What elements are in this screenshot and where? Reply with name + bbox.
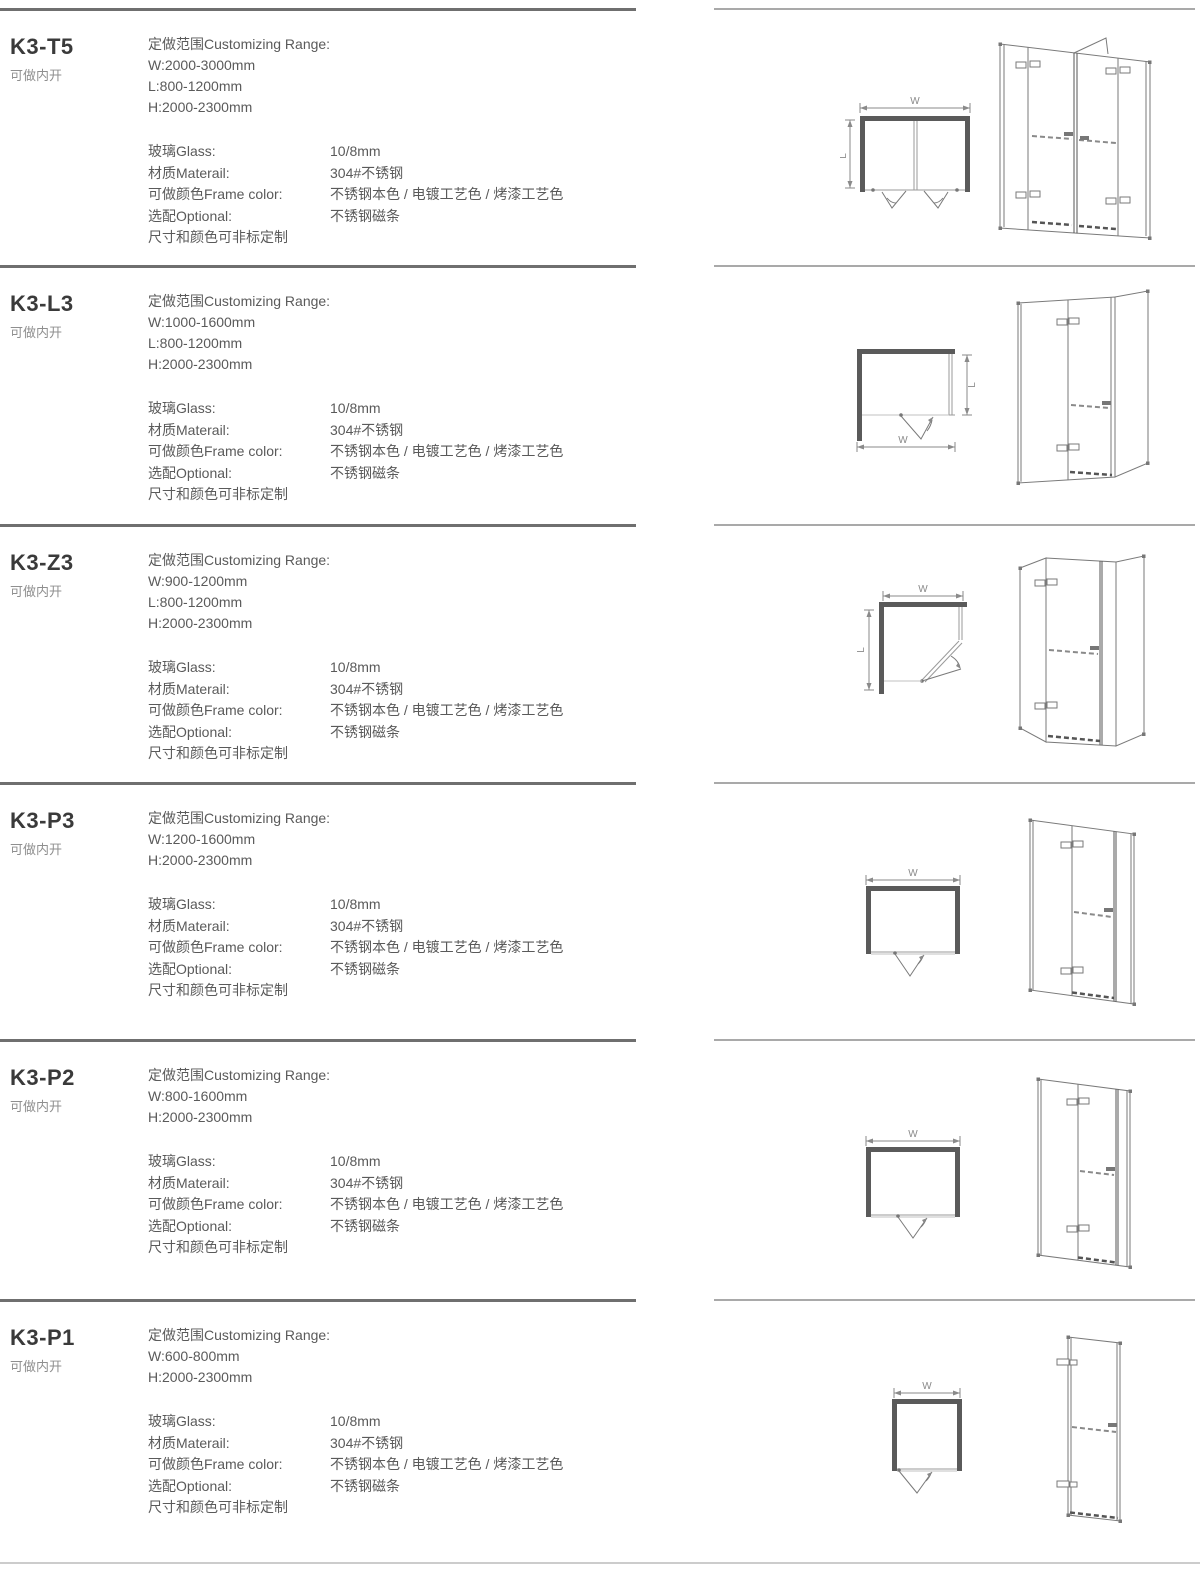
model-name: K3-T5 <box>10 34 74 60</box>
spec-row: 材质Materail:304#不锈钢 <box>148 916 563 938</box>
range-title: 定做范围Customizing Range: <box>148 1065 563 1086</box>
range-title: 定做范围Customizing Range: <box>148 291 563 312</box>
spec-block: 定做范围Customizing Range: W:1000-1600mm L:8… <box>148 291 563 506</box>
spec-table: 玻璃Glass:10/8mm 材质Materail:304#不锈钢 可做颜色Fr… <box>148 657 563 765</box>
model-subtitle: 可做内开 <box>10 1356 75 1375</box>
model-name: K3-Z3 <box>10 550 74 576</box>
divider-right <box>714 524 1195 526</box>
spec-row: 材质Materail:304#不锈钢 <box>148 1433 563 1455</box>
dim-w-label: W <box>898 435 908 446</box>
spec-row: 玻璃Glass:10/8mm <box>148 894 563 916</box>
spec-label: 材质Materail: <box>148 679 330 701</box>
spec-row: 材质Materail:304#不锈钢 <box>148 420 563 442</box>
spec-footnote: 尺寸和颜色可非标定制 <box>148 484 563 506</box>
perspective-diagram-k3-p2 <box>1032 1071 1138 1273</box>
plan-view-diagram-k3-l3: W L <box>843 335 983 455</box>
plan-view-diagram-k3-p3: W <box>848 866 978 978</box>
model-name: K3-P1 <box>10 1325 75 1351</box>
spec-value: 不锈钢磁条 <box>330 959 400 981</box>
range-height: H:2000-2300mm <box>148 1107 563 1128</box>
range-width: W:2000-3000mm <box>148 55 563 76</box>
spec-label: 可做颜色Frame color: <box>148 1194 330 1216</box>
dim-w-label: W <box>910 96 920 107</box>
divider-right <box>714 8 1195 10</box>
spec-value: 304#不锈钢 <box>330 1173 403 1195</box>
spec-label: 玻璃Glass: <box>148 1411 330 1433</box>
plan-view-diagram-k3-p1: W <box>872 1379 982 1497</box>
spec-footnote: 尺寸和颜色可非标定制 <box>148 743 563 765</box>
dim-l-label: L <box>857 647 867 653</box>
spec-label: 玻璃Glass: <box>148 657 330 679</box>
spec-value: 不锈钢磁条 <box>330 463 400 485</box>
range-length: L:800-1200mm <box>148 333 563 354</box>
spec-value: 304#不锈钢 <box>330 679 403 701</box>
divider-left <box>0 782 636 785</box>
spec-block: 定做范围Customizing Range: W:800-1600mm H:20… <box>148 1065 563 1259</box>
range-title: 定做范围Customizing Range: <box>148 34 563 55</box>
range-length: L:800-1200mm <box>148 592 563 613</box>
spec-row: 选配Optional:不锈钢磁条 <box>148 206 563 228</box>
spec-value: 不锈钢磁条 <box>330 1476 400 1498</box>
spec-label: 玻璃Glass: <box>148 398 330 420</box>
divider-right <box>714 265 1195 267</box>
catalog-sections: K3-T5 可做内开 定做范围Customizing Range: W:2000… <box>0 8 1200 1570</box>
spec-label: 材质Materail: <box>148 1173 330 1195</box>
spec-row: 玻璃Glass:10/8mm <box>148 657 563 679</box>
spec-label: 玻璃Glass: <box>148 141 330 163</box>
spec-table: 玻璃Glass:10/8mm 材质Materail:304#不锈钢 可做颜色Fr… <box>148 1411 563 1519</box>
range-title: 定做范围Customizing Range: <box>148 808 563 829</box>
page-bottom-rule <box>0 1562 1200 1564</box>
dim-w-label: W <box>918 584 928 595</box>
spec-label: 选配Optional: <box>148 463 330 485</box>
divider-right <box>714 1299 1195 1301</box>
model-name: K3-P3 <box>10 808 75 834</box>
model-block: K3-T5 可做内开 <box>10 34 74 84</box>
range-title: 定做范围Customizing Range: <box>148 550 563 571</box>
spec-label: 可做颜色Frame color: <box>148 441 330 463</box>
product-section-k3-t5: K3-T5 可做内开 定做范围Customizing Range: W:2000… <box>0 8 1200 265</box>
spec-value: 不锈钢磁条 <box>330 722 400 744</box>
dim-l-label: L <box>967 382 978 388</box>
perspective-diagram-k3-z3 <box>1012 550 1152 762</box>
spec-value: 不锈钢本色 / 电镀工艺色 / 烤漆工艺色 <box>330 184 563 206</box>
divider-left <box>0 524 636 527</box>
spec-label: 可做颜色Frame color: <box>148 937 330 959</box>
spec-value: 不锈钢本色 / 电镀工艺色 / 烤漆工艺色 <box>330 1454 563 1476</box>
spec-value: 不锈钢磁条 <box>330 206 400 228</box>
divider-left <box>0 1299 636 1302</box>
spec-row: 材质Materail:304#不锈钢 <box>148 163 563 185</box>
model-subtitle: 可做内开 <box>10 1096 75 1115</box>
spec-row: 玻璃Glass:10/8mm <box>148 1151 563 1173</box>
range-width: W:1000-1600mm <box>148 312 563 333</box>
spec-label: 可做颜色Frame color: <box>148 1454 330 1476</box>
spec-value: 不锈钢本色 / 电镀工艺色 / 烤漆工艺色 <box>330 441 563 463</box>
range-height: H:2000-2300mm <box>148 1367 563 1388</box>
spec-label: 玻璃Glass: <box>148 894 330 916</box>
spec-label: 选配Optional: <box>148 1476 330 1498</box>
spec-value: 10/8mm <box>330 398 381 420</box>
spec-label: 玻璃Glass: <box>148 1151 330 1173</box>
spec-label: 选配Optional: <box>148 722 330 744</box>
spec-label: 材质Materail: <box>148 420 330 442</box>
perspective-diagram-k3-p1 <box>1052 1331 1136 1531</box>
divider-right <box>714 1039 1195 1041</box>
spec-row: 选配Optional:不锈钢磁条 <box>148 722 563 744</box>
model-name: K3-L3 <box>10 291 74 317</box>
spec-block: 定做范围Customizing Range: W:2000-3000mm L:8… <box>148 34 563 249</box>
spec-table: 玻璃Glass:10/8mm 材质Materail:304#不锈钢 可做颜色Fr… <box>148 1151 563 1259</box>
range-width: W:800-1600mm <box>148 1086 563 1107</box>
range-length: L:800-1200mm <box>148 76 563 97</box>
spec-row: 可做颜色Frame color:不锈钢本色 / 电镀工艺色 / 烤漆工艺色 <box>148 937 563 959</box>
spec-row: 可做颜色Frame color:不锈钢本色 / 电镀工艺色 / 烤漆工艺色 <box>148 1194 563 1216</box>
product-section-k3-p1: K3-P1 可做内开 定做范围Customizing Range: W:600-… <box>0 1299 1200 1570</box>
spec-row: 可做颜色Frame color:不锈钢本色 / 电镀工艺色 / 烤漆工艺色 <box>148 184 563 206</box>
spec-row: 可做颜色Frame color:不锈钢本色 / 电镀工艺色 / 烤漆工艺色 <box>148 441 563 463</box>
spec-value: 304#不锈钢 <box>330 916 403 938</box>
perspective-diagram-k3-t5 <box>988 26 1160 244</box>
spec-footnote: 尺寸和颜色可非标定制 <box>148 1497 563 1519</box>
model-block: K3-P2 可做内开 <box>10 1065 75 1115</box>
perspective-diagram-k3-p3 <box>1022 812 1144 1014</box>
range-title: 定做范围Customizing Range: <box>148 1325 563 1346</box>
spec-value: 不锈钢磁条 <box>330 1216 400 1238</box>
spec-row: 可做颜色Frame color:不锈钢本色 / 电镀工艺色 / 烤漆工艺色 <box>148 700 563 722</box>
spec-value: 10/8mm <box>330 894 381 916</box>
spec-label: 选配Optional: <box>148 959 330 981</box>
spec-label: 可做颜色Frame color: <box>148 700 330 722</box>
dim-l-label: L <box>840 153 849 159</box>
range-height: H:2000-2300mm <box>148 613 563 634</box>
product-section-k3-l3: K3-L3 可做内开 定做范围Customizing Range: W:1000… <box>0 265 1200 524</box>
plan-view-diagram-k3-p2: W <box>848 1127 978 1239</box>
product-section-k3-z3: K3-Z3 可做内开 定做范围Customizing Range: W:900-… <box>0 524 1200 782</box>
spec-row: 玻璃Glass:10/8mm <box>148 1411 563 1433</box>
model-subtitle: 可做内开 <box>10 322 74 341</box>
spec-row: 可做颜色Frame color:不锈钢本色 / 电镀工艺色 / 烤漆工艺色 <box>148 1454 563 1476</box>
model-subtitle: 可做内开 <box>10 839 75 858</box>
spec-block: 定做范围Customizing Range: W:600-800mm H:200… <box>148 1325 563 1519</box>
spec-value: 304#不锈钢 <box>330 420 403 442</box>
spec-value: 不锈钢本色 / 电镀工艺色 / 烤漆工艺色 <box>330 937 563 959</box>
spec-value: 304#不锈钢 <box>330 1433 403 1455</box>
divider-right <box>714 782 1195 784</box>
range-width: W:1200-1600mm <box>148 829 563 850</box>
spec-row: 玻璃Glass:10/8mm <box>148 141 563 163</box>
product-section-k3-p2: K3-P2 可做内开 定做范围Customizing Range: W:800-… <box>0 1039 1200 1299</box>
spec-footnote: 尺寸和颜色可非标定制 <box>148 227 563 249</box>
spec-value: 不锈钢本色 / 电镀工艺色 / 烤漆工艺色 <box>330 700 563 722</box>
model-block: K3-Z3 可做内开 <box>10 550 74 600</box>
spec-table: 玻璃Glass:10/8mm 材质Materail:304#不锈钢 可做颜色Fr… <box>148 141 563 249</box>
spec-row: 玻璃Glass:10/8mm <box>148 398 563 420</box>
spec-value: 304#不锈钢 <box>330 163 403 185</box>
spec-row: 选配Optional:不锈钢磁条 <box>148 959 563 981</box>
model-name: K3-P2 <box>10 1065 75 1091</box>
spec-value: 10/8mm <box>330 657 381 679</box>
spec-footnote: 尺寸和颜色可非标定制 <box>148 980 563 1002</box>
spec-label: 材质Materail: <box>148 1433 330 1455</box>
model-block: K3-P1 可做内开 <box>10 1325 75 1375</box>
spec-row: 材质Materail:304#不锈钢 <box>148 1173 563 1195</box>
range-height: H:2000-2300mm <box>148 850 563 871</box>
spec-value: 10/8mm <box>330 1411 381 1433</box>
spec-value: 不锈钢本色 / 电镀工艺色 / 烤漆工艺色 <box>330 1194 563 1216</box>
dim-w-label: W <box>908 868 918 879</box>
spec-block: 定做范围Customizing Range: W:1200-1600mm H:2… <box>148 808 563 1002</box>
spec-table: 玻璃Glass:10/8mm 材质Materail:304#不锈钢 可做颜色Fr… <box>148 894 563 1002</box>
range-width: W:900-1200mm <box>148 571 563 592</box>
plan-view-diagram-k3-t5: W L <box>840 94 980 212</box>
spec-table: 玻璃Glass:10/8mm 材质Materail:304#不锈钢 可做颜色Fr… <box>148 398 563 506</box>
spec-label: 材质Materail: <box>148 163 330 185</box>
model-subtitle: 可做内开 <box>10 581 74 600</box>
spec-block: 定做范围Customizing Range: W:900-1200mm L:80… <box>148 550 563 765</box>
divider-left <box>0 265 636 268</box>
spec-row: 选配Optional:不锈钢磁条 <box>148 463 563 485</box>
spec-row: 选配Optional:不锈钢磁条 <box>148 1216 563 1238</box>
divider-left <box>0 8 636 11</box>
spec-label: 材质Materail: <box>148 916 330 938</box>
range-height: H:2000-2300mm <box>148 354 563 375</box>
spec-label: 选配Optional: <box>148 206 330 228</box>
dim-w-label: W <box>908 1129 918 1140</box>
spec-value: 10/8mm <box>330 1151 381 1173</box>
range-height: H:2000-2300mm <box>148 97 563 118</box>
spec-footnote: 尺寸和颜色可非标定制 <box>148 1237 563 1259</box>
perspective-diagram-k3-l3 <box>1000 287 1160 502</box>
model-subtitle: 可做内开 <box>10 65 74 84</box>
dim-w-label: W <box>922 1381 932 1392</box>
plan-view-diagram-k3-z3: W L <box>857 582 987 707</box>
range-width: W:600-800mm <box>148 1346 563 1367</box>
spec-label: 选配Optional: <box>148 1216 330 1238</box>
spec-label: 可做颜色Frame color: <box>148 184 330 206</box>
model-block: K3-P3 可做内开 <box>10 808 75 858</box>
model-block: K3-L3 可做内开 <box>10 291 74 341</box>
product-section-k3-p3: K3-P3 可做内开 定做范围Customizing Range: W:1200… <box>0 782 1200 1039</box>
spec-value: 10/8mm <box>330 141 381 163</box>
spec-row: 选配Optional:不锈钢磁条 <box>148 1476 563 1498</box>
spec-row: 材质Materail:304#不锈钢 <box>148 679 563 701</box>
divider-left <box>0 1039 636 1042</box>
